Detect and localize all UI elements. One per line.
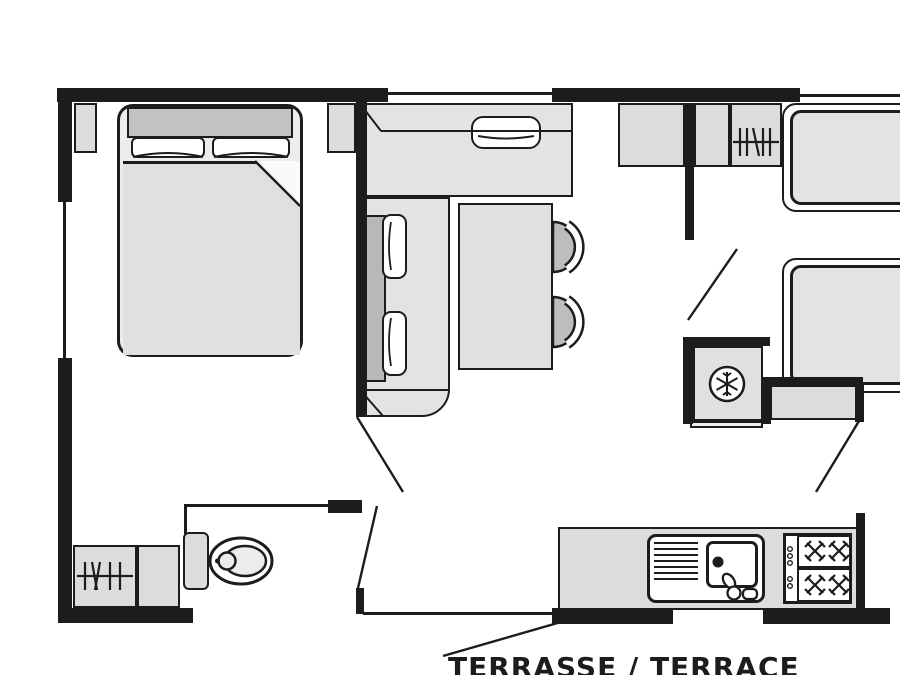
sofa-detail-lines [361,105,571,416]
chair-2 [553,297,579,347]
door-swing-bathroom [358,506,377,588]
pillow-seam-left [133,153,203,157]
snowflake-icon [710,367,744,401]
door-swing-bedroom [357,417,403,492]
faucet-icon [720,572,757,600]
terrace-label: TERRASSE / TERRACE [448,654,800,675]
hanging-rail-icon [733,128,779,156]
door-swing-twinroom [688,249,737,320]
blanket-fold [255,161,300,206]
sink-drain [713,557,724,568]
pillow-seam-right [214,153,288,157]
floorplan-canvas: TERRASSE / TERRACE [0,0,900,675]
toilet-icon [210,538,272,584]
hanging-rail-icon [77,562,133,590]
plan-detail-overlay [0,0,900,675]
door-swing-rear [816,421,859,492]
sink-drainer [654,543,698,579]
chair-1 [553,222,579,272]
hob-knobs [788,547,793,589]
